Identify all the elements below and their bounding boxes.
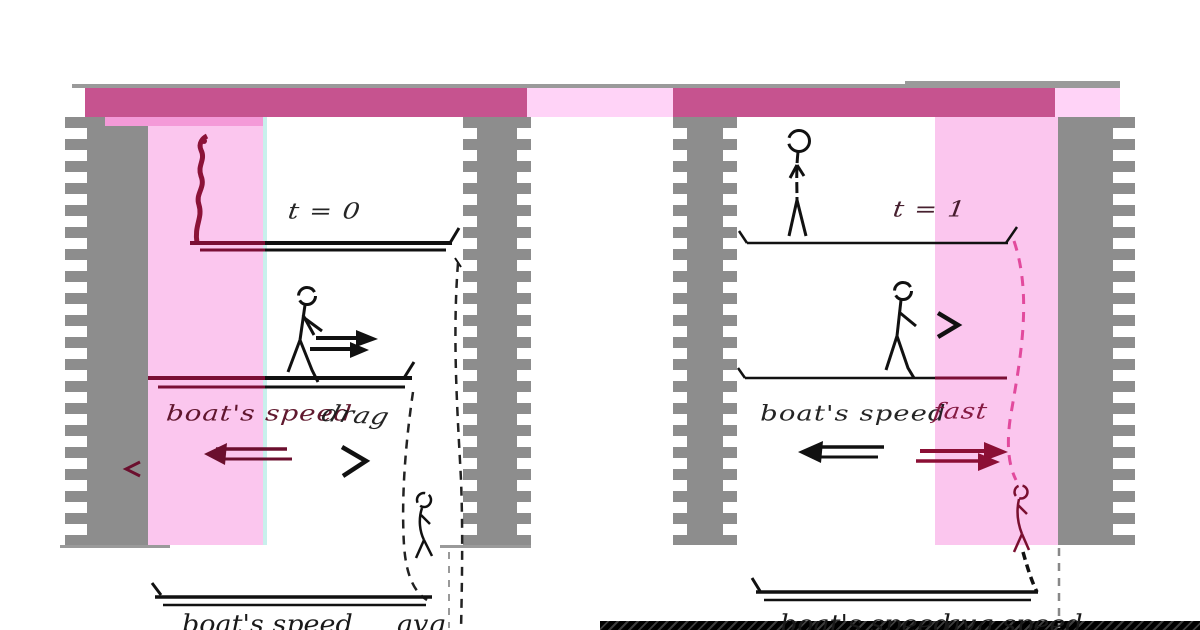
diagram-linework — [0, 0, 1200, 630]
bottom-caption-right-b: avg speed — [945, 612, 1083, 630]
time-label-right: t = 1 — [892, 198, 968, 220]
second-label-right: fast — [932, 400, 990, 422]
physics-diagram-canvas: t = 0 t = 1 boat's speed drag boat's spe… — [0, 0, 1200, 630]
bottom-caption-right-a: boat's speed — [780, 612, 951, 630]
chevron-right-icon — [938, 313, 958, 337]
standing-person-icon — [789, 131, 810, 237]
velocity-arrow-right-icon — [916, 442, 1008, 471]
sliding-person-icon — [416, 493, 432, 558]
boat-line — [148, 362, 414, 387]
time-label-left: t = 0 — [287, 200, 363, 222]
flag-squiggle-icon — [196, 136, 207, 243]
walking-person-icon — [288, 288, 322, 383]
boat-line — [190, 228, 461, 267]
boat-line — [739, 227, 1017, 243]
dashed-trajectory-curve — [1008, 241, 1059, 628]
boat-line — [152, 583, 432, 605]
dashed-trajectory-curve — [403, 263, 462, 630]
boat-line — [752, 578, 1038, 600]
velocity-arrow-right-icon — [310, 330, 378, 358]
walking-person-icon — [886, 283, 916, 379]
velocity-arrow-left-icon — [126, 443, 292, 476]
second-label-left: drag — [319, 402, 392, 429]
sliding-person-icon — [1014, 486, 1029, 553]
bottom-caption-left-b: avg — [397, 612, 446, 630]
chevron-right-icon — [342, 447, 366, 476]
bottom-caption-left-a: boat's speed — [182, 612, 353, 630]
boat-speed-label-right: boat's speed — [760, 403, 946, 425]
boat-line — [738, 368, 1007, 378]
velocity-arrow-left-icon — [798, 441, 884, 463]
